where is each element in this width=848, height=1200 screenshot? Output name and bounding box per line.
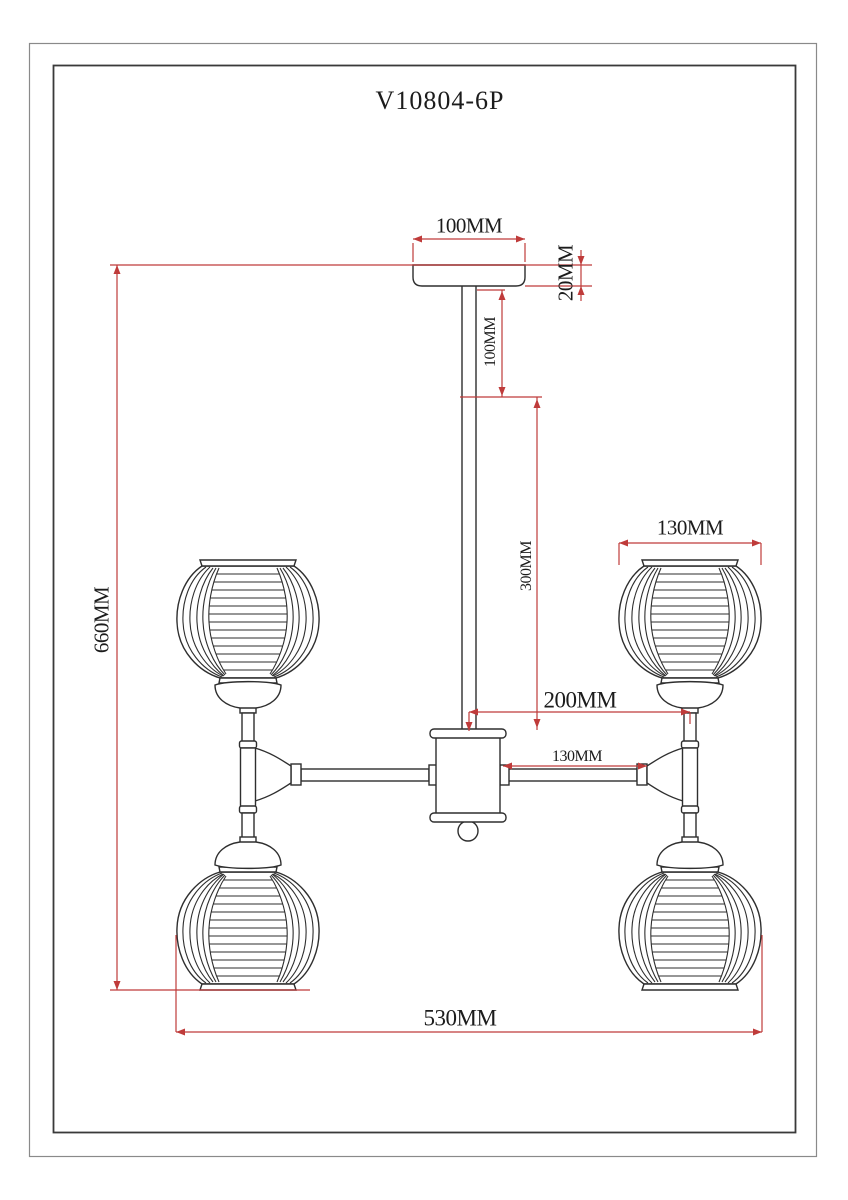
ceiling-canopy (413, 265, 525, 286)
shade-upper-right (619, 560, 761, 708)
left-arm (255, 748, 438, 801)
dim-label-stem-upper: 100MM (483, 317, 499, 367)
dim-label-overall-width: 530MM (424, 1007, 497, 1030)
dim-label-canopy-width: 100MM (436, 216, 502, 237)
left-tee-pipe (240, 707, 257, 843)
fixture (177, 265, 761, 990)
dim-label-canopy-height: 20MM (556, 245, 577, 301)
dim-label-shade-diameter: 130MM (657, 518, 723, 539)
stem-rod (462, 286, 476, 730)
dim-label-arm-length: 130MM (552, 749, 602, 765)
dim-label-stem-lower: 300MM (519, 541, 535, 591)
dim-label-center-to-arm: 200MM (544, 689, 617, 712)
technical-drawing-page: V10804-6P 100MM 20MM 100MM 300MM 200MM 1… (0, 0, 848, 1200)
right-tee-pipe (682, 707, 699, 843)
shade-lower-right (619, 842, 761, 990)
hub-finial-ball (458, 821, 478, 841)
center-hub (430, 729, 506, 841)
drawing-title: V10804-6P (376, 88, 505, 114)
shade-upper-left (177, 560, 319, 708)
dim-label-overall-height: 660MM (92, 587, 113, 653)
shade-lower-left (177, 842, 319, 990)
